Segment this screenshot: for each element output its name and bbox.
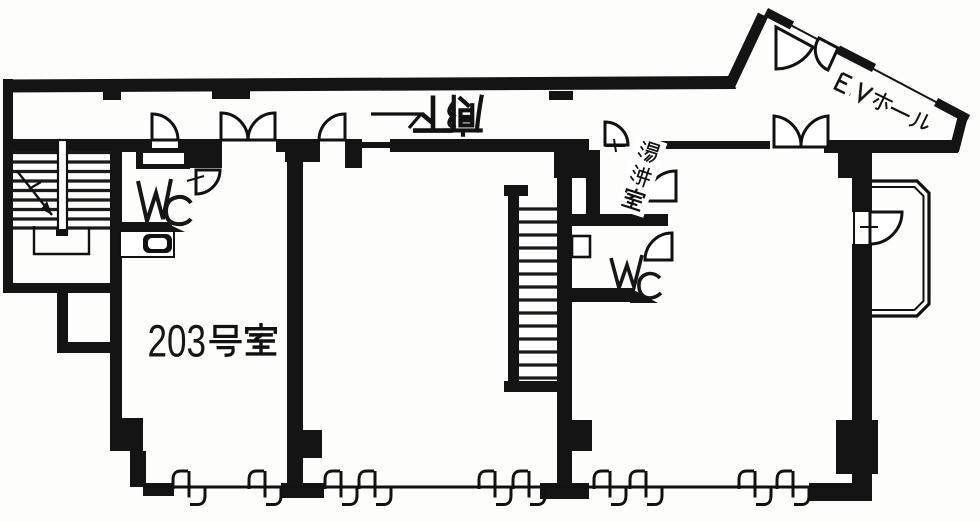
svg-text:203: 203 [148,315,207,366]
